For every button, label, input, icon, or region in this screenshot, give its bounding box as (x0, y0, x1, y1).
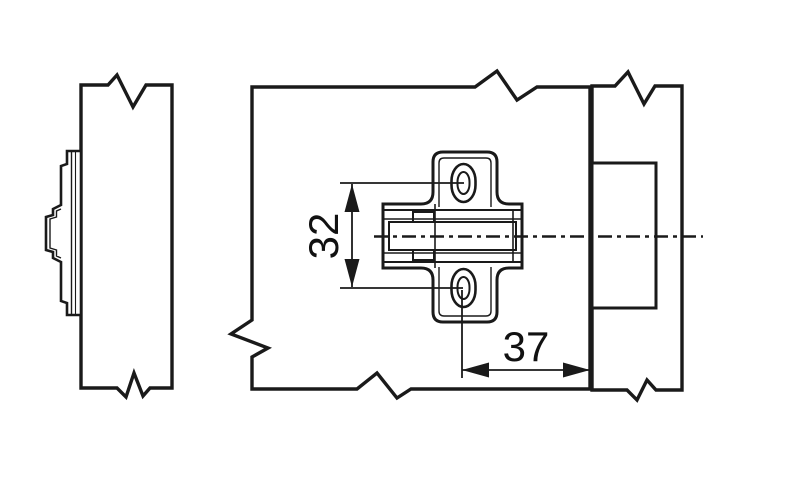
dim-37-arrow-right (563, 363, 590, 378)
dim-32-arrow-up (345, 184, 360, 212)
dim-32-label: 32 (300, 213, 347, 260)
dim-32-arrow-down (345, 259, 360, 287)
left-panel-group (46, 75, 172, 397)
technical-diagram: 32 37 (0, 0, 788, 480)
drawing-canvas: 32 37 (0, 0, 788, 480)
left-panel (81, 75, 172, 397)
dim-37-arrow-left (462, 363, 489, 378)
dim-37-label: 37 (503, 323, 550, 370)
